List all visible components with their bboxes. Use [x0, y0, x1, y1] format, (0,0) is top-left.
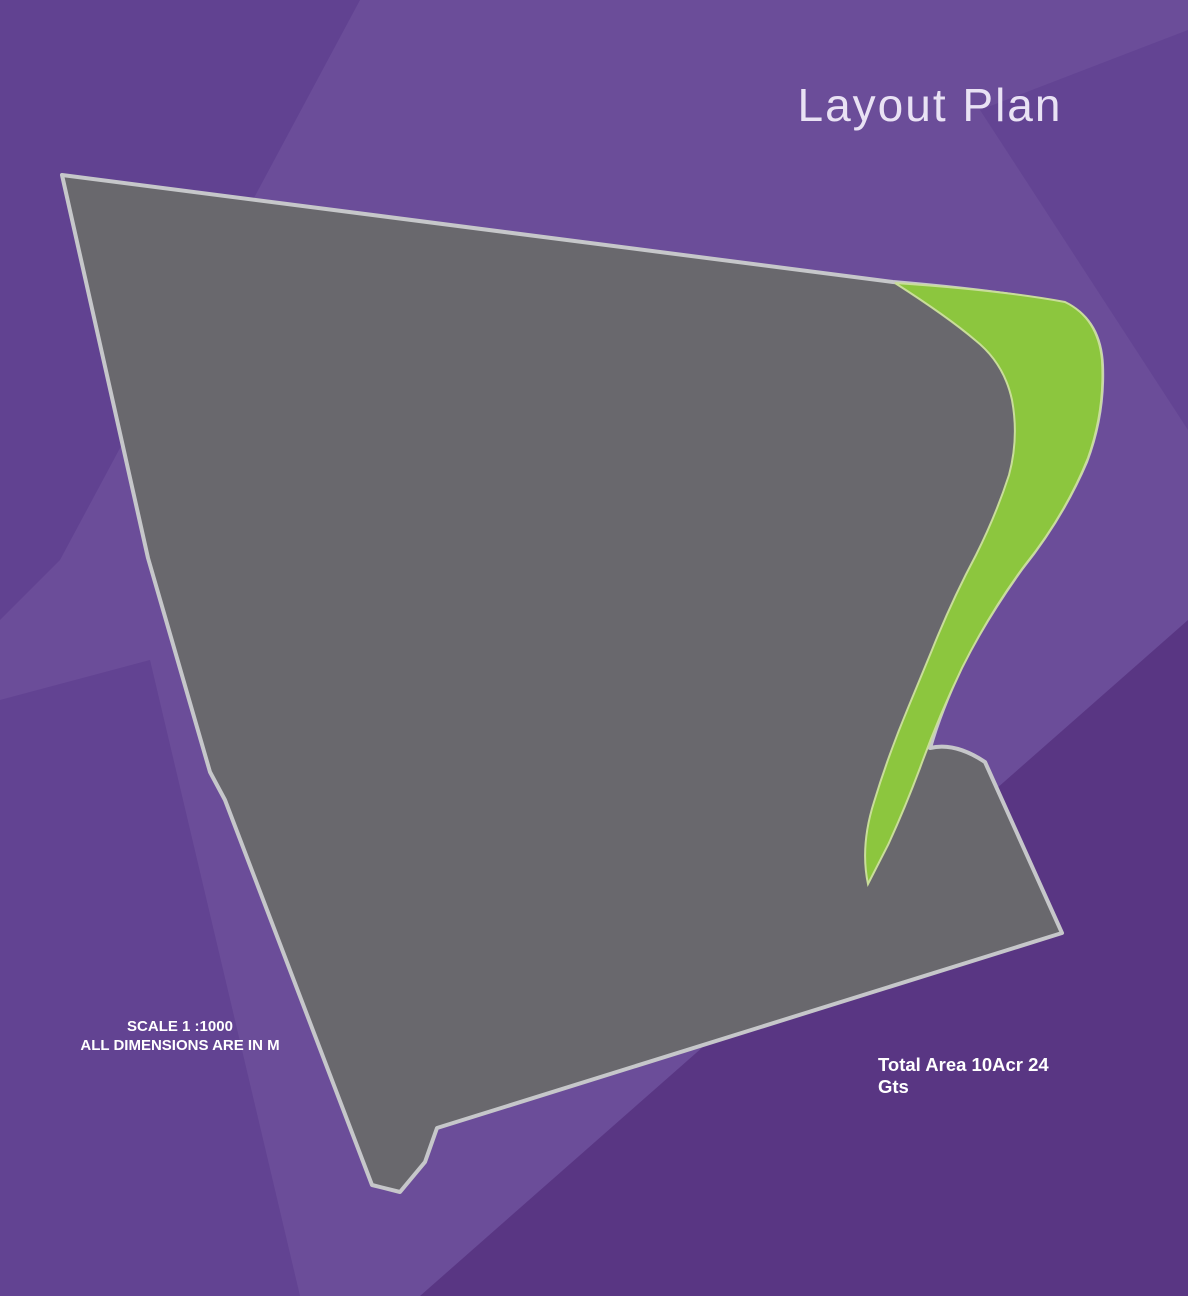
dimensions-line: ALL DIMENSIONS ARE IN M — [40, 1037, 320, 1056]
layout-plan-page: Layout Plan SCALE 1 :1000 ALL DIMENSIONS… — [0, 0, 1188, 1296]
legend-title: Total Area 10Acr 24 Gts — [878, 1054, 1070, 1098]
scale-note: SCALE 1 :1000 ALL DIMENSIONS ARE IN M — [40, 1018, 320, 1056]
legend: Total Area 10Acr 24 Gts — [878, 1054, 1070, 1104]
scale-line: SCALE 1 :1000 — [40, 1018, 320, 1037]
page-title: Layout Plan — [700, 78, 1160, 132]
